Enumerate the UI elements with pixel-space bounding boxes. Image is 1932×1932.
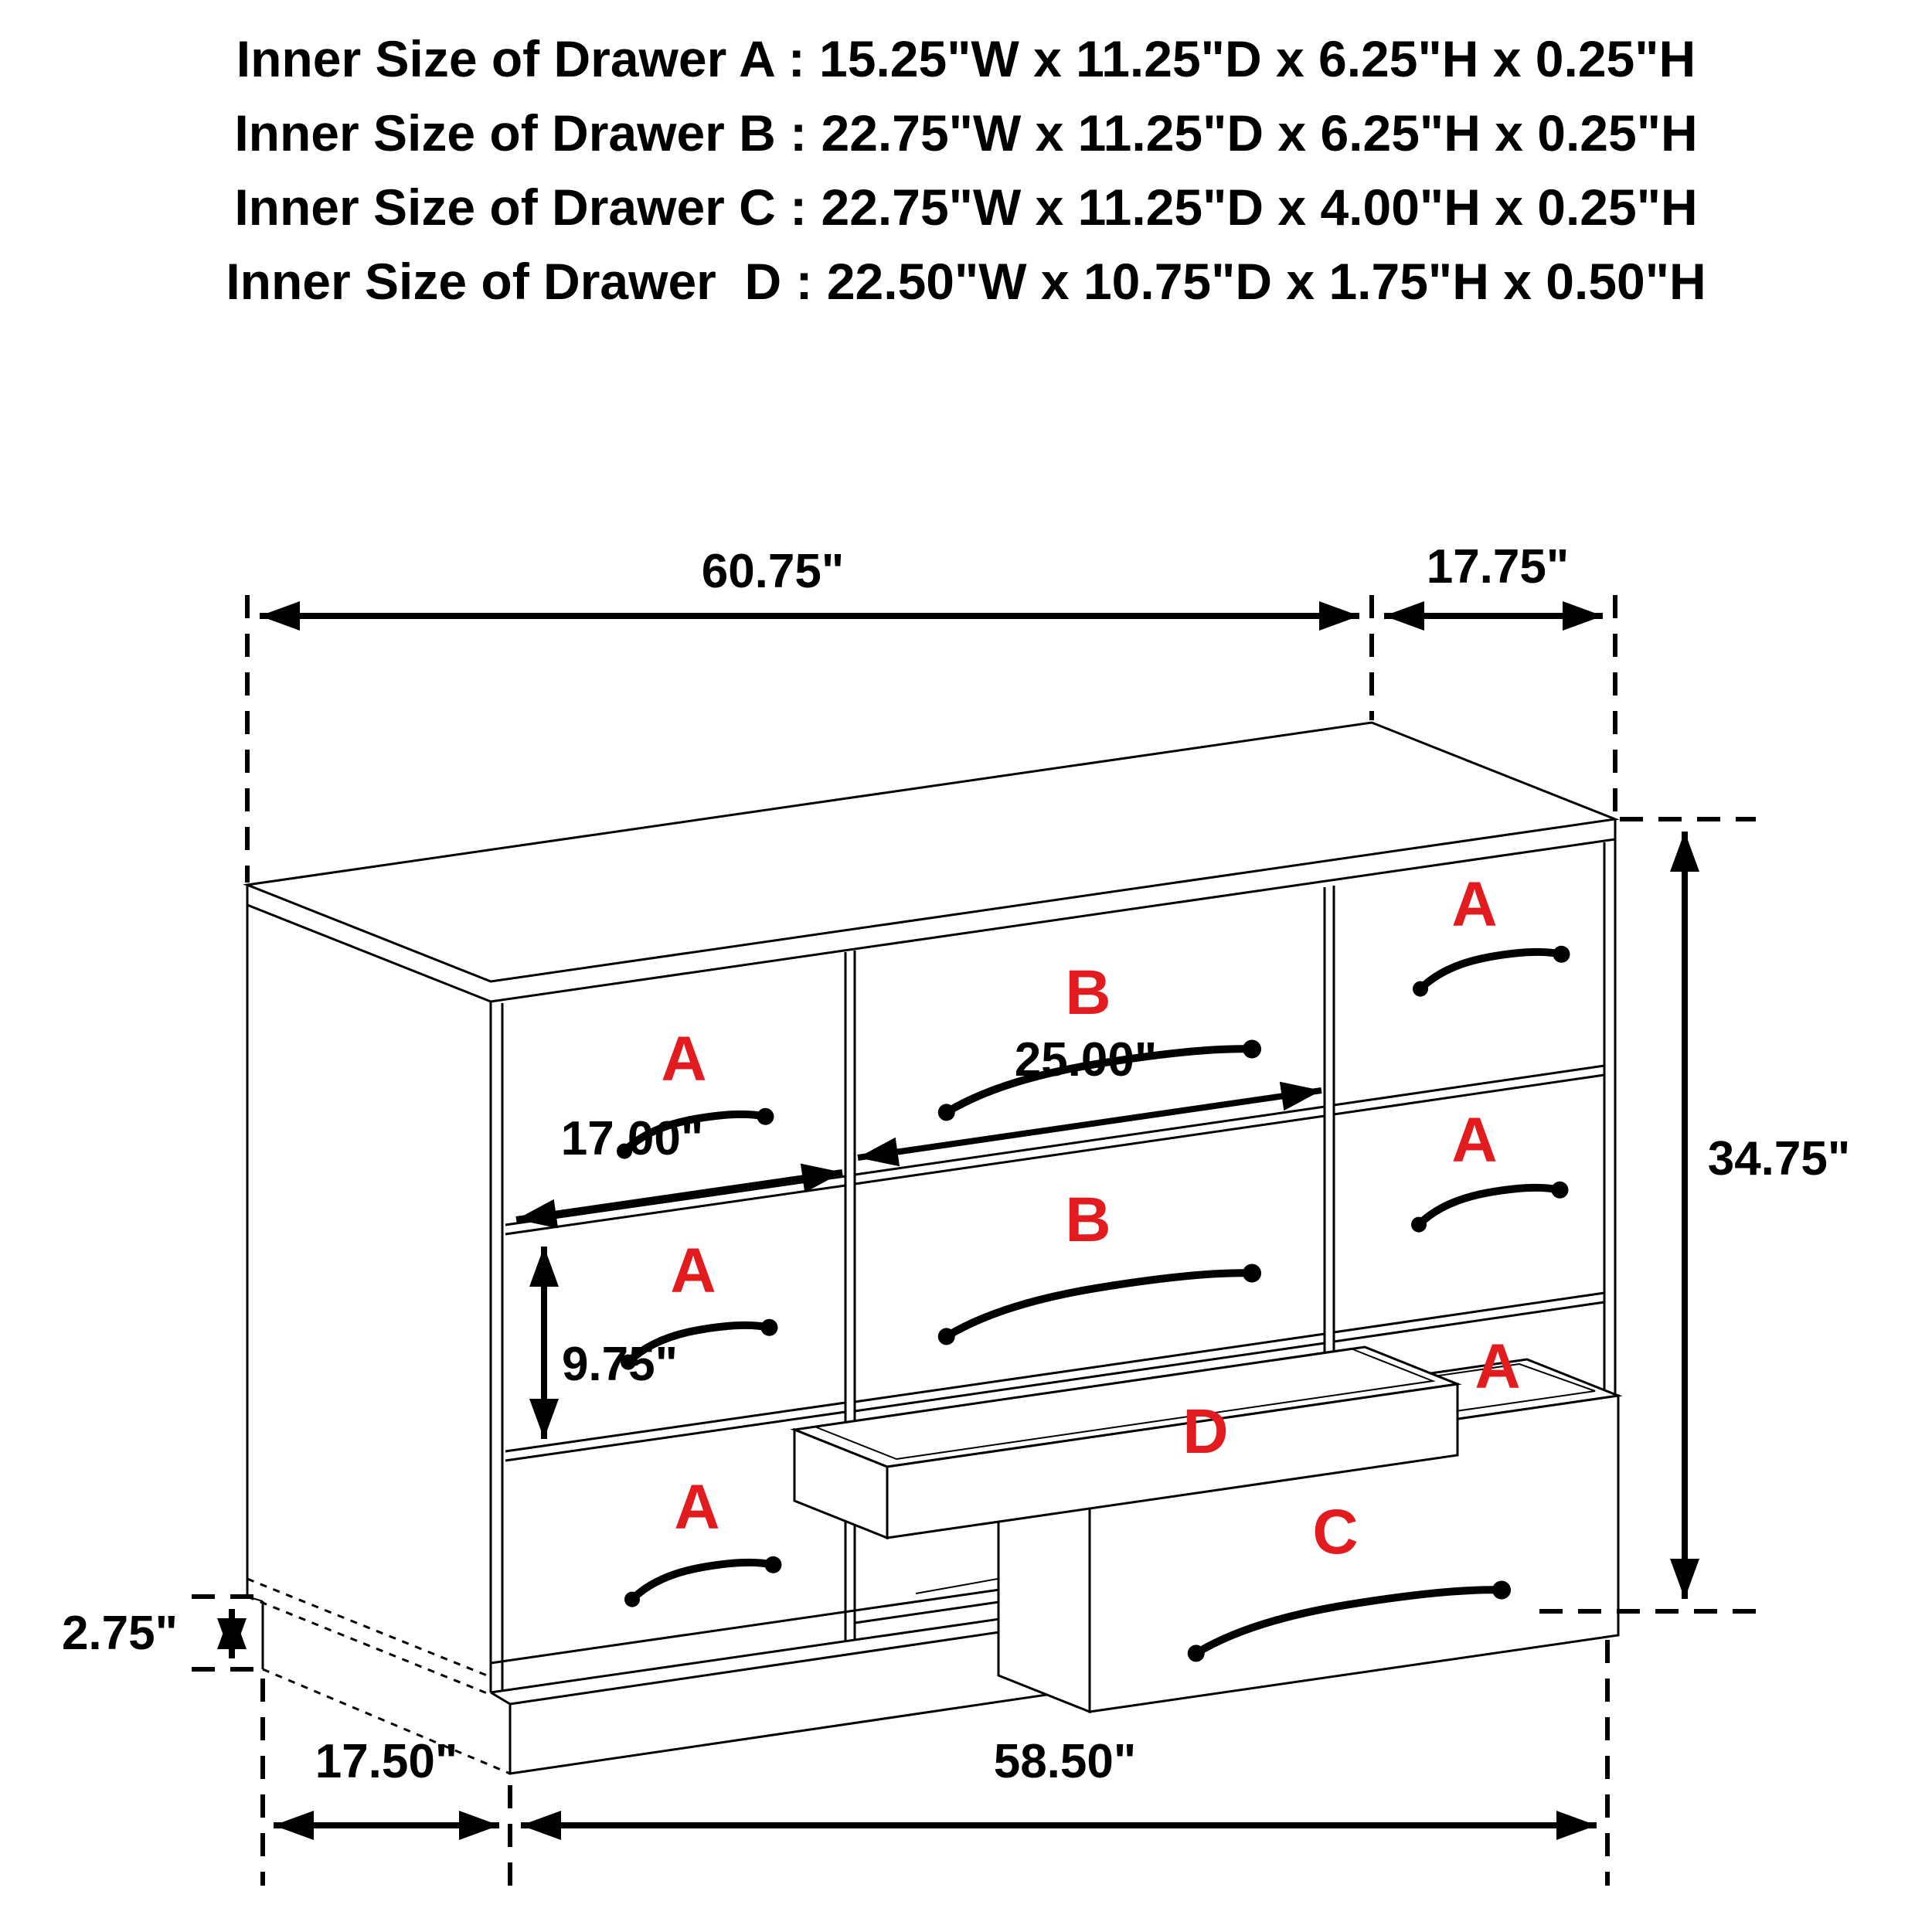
dimension-label-floor-width: 58.50" (994, 1735, 1137, 1788)
label-drawer-a-left-top: A (661, 1024, 706, 1094)
handle-b-middle (934, 1263, 1265, 1346)
dresser-dimension-diagram-page: { "title_block": { "lines": [ "Inner Siz… (0, 0, 1932, 1932)
label-drawer-c: C (1312, 1497, 1358, 1567)
label-drawer-a-right-middle: A (1451, 1105, 1497, 1175)
label-drawer-a-right-bottom: A (1475, 1332, 1520, 1402)
dimension-label-floor-depth: 17.50" (315, 1735, 458, 1788)
handle-a-right-top (1410, 944, 1573, 998)
dimension-drawer-a-front-height: 9.75" (544, 1247, 678, 1439)
cabinet-top-face (247, 723, 1615, 981)
handle-a-right-middle (1408, 1180, 1571, 1233)
label-drawer-d: D (1182, 1396, 1228, 1467)
label-drawer-b-middle: B (1065, 1185, 1111, 1255)
label-drawer-b-top: B (1065, 957, 1111, 1028)
dimension-label-drawer-a-front-height: 9.75" (562, 1338, 678, 1391)
dimension-drawer-a-width: 17.00" (516, 1112, 842, 1219)
dimension-label-drawer-a-width: 17.00" (561, 1112, 704, 1165)
handle-a-left-bottom (621, 1555, 784, 1608)
dimension-label-top-width: 60.75" (702, 545, 845, 598)
label-drawer-a-right-top: A (1451, 869, 1497, 940)
label-drawer-a-left-bottom: A (674, 1472, 719, 1543)
dimension-label-top-depth: 17.75" (1427, 540, 1570, 594)
dimension-label-base-height: 2.75" (62, 1607, 178, 1660)
dimension-base-height: 2.75" (62, 1597, 269, 1669)
dimension-label-drawer-b-width: 25.00" (1015, 1033, 1158, 1087)
dimension-floor-depth: 17.50" (263, 1679, 510, 1886)
dimension-label-overall-height: 34.75" (1708, 1132, 1851, 1185)
label-drawer-a-left-middle: A (670, 1236, 716, 1306)
dresser-line-drawing: A A A B B A A A D C 60.75" 17.75" 34.75"… (0, 0, 1932, 1932)
